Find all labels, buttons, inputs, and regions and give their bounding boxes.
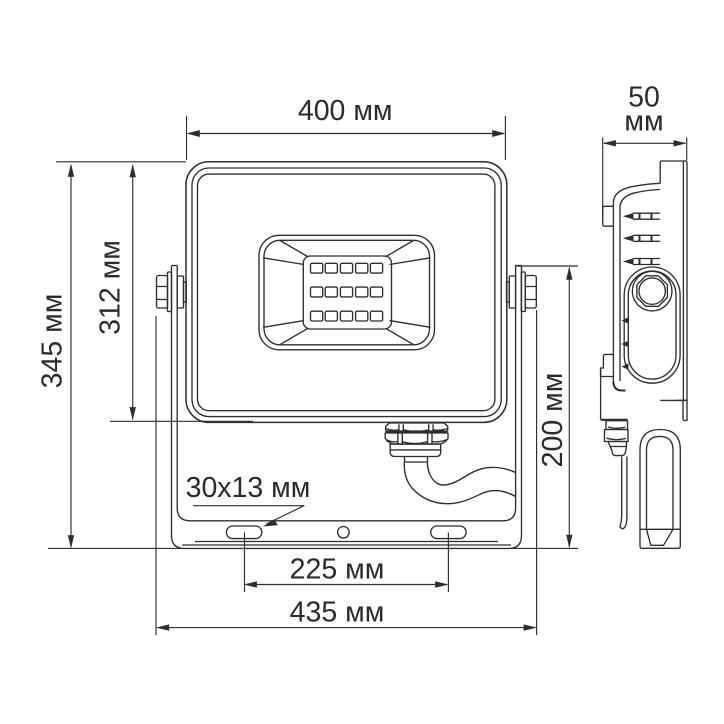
svg-text:435 мм: 435 мм [290, 597, 385, 629]
svg-text:225 мм: 225 мм [290, 554, 385, 586]
svg-text:мм: мм [624, 106, 663, 138]
svg-text:30x13 мм: 30x13 мм [186, 472, 311, 504]
svg-text:345 мм: 345 мм [36, 294, 68, 389]
svg-text:312 мм: 312 мм [94, 240, 126, 335]
svg-text:200 мм: 200 мм [537, 373, 569, 468]
svg-text:400 мм: 400 мм [298, 95, 393, 127]
